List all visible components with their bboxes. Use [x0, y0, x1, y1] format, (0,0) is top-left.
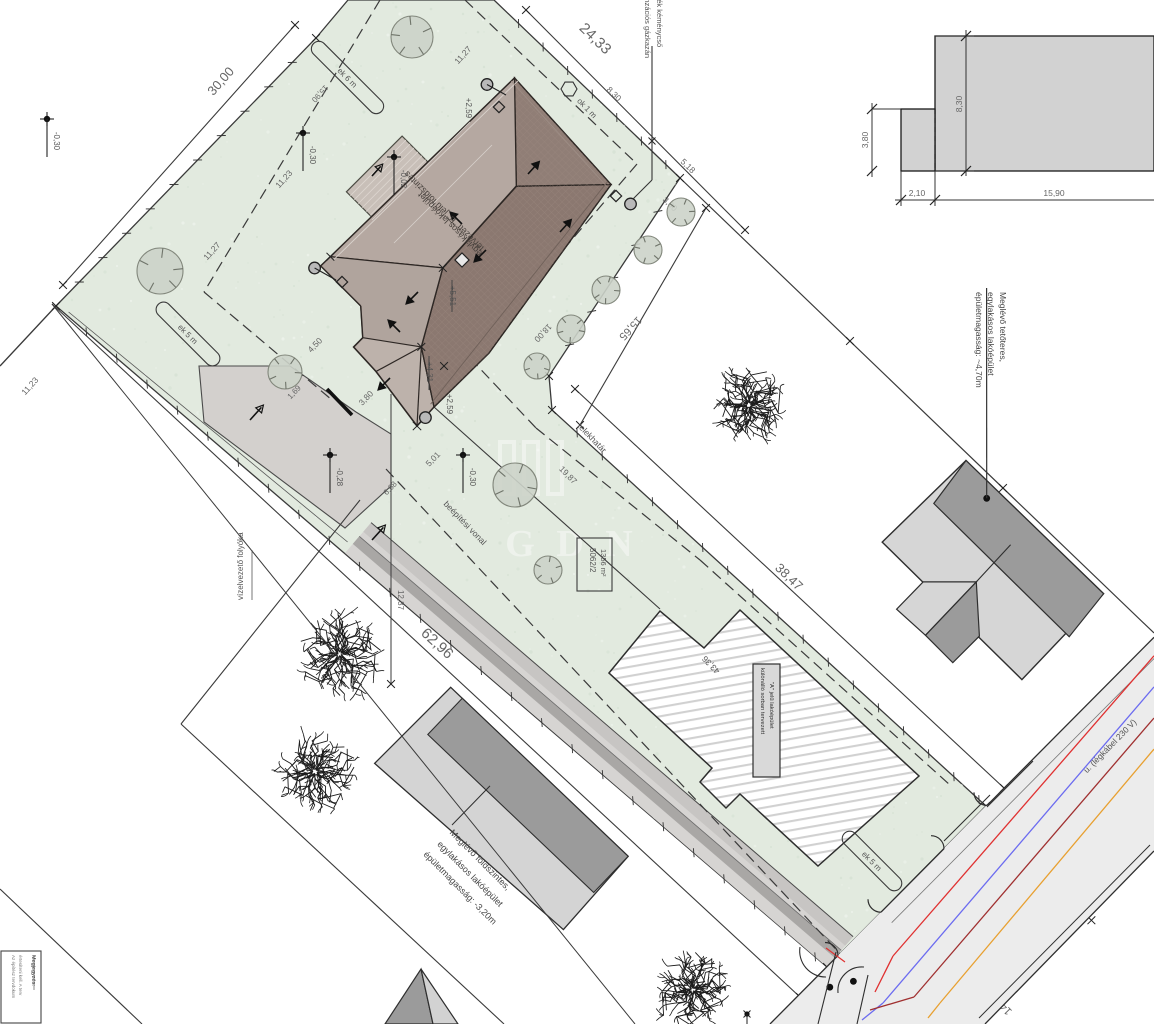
svg-text:egylakásos lakóépület: egylakásos lakóépület — [986, 292, 996, 376]
svg-text:épületmagasság: ~4,70m: épületmagasság: ~4,70m — [974, 292, 984, 388]
svg-text:12,37: 12,37 — [396, 590, 405, 611]
svg-text:-0,30: -0,30 — [308, 146, 317, 165]
svg-text:különálló sorban tervezett: különálló sorban tervezett — [759, 668, 765, 734]
svg-text:+2,59: +2,59 — [445, 394, 454, 415]
svg-text:15,90: 15,90 — [1043, 188, 1065, 198]
svg-text:Meglévő tetőteres,: Meglévő tetőteres, — [998, 292, 1008, 362]
svg-text:8,30: 8,30 — [954, 95, 964, 112]
svg-text:égéstermék kéménycső: égéstermék kéménycső — [655, 0, 664, 47]
svg-text:G D N: G D N — [505, 523, 638, 565]
svg-text:+2,59: +2,59 — [464, 98, 473, 119]
svg-text:Az építész tervdokum: Az építész tervdokum — [11, 955, 16, 999]
svg-text:-0,02: -0,02 — [399, 170, 408, 189]
svg-text:Megjegyzés:: Megjegyzés: — [30, 955, 36, 986]
svg-text:-0,30: -0,30 — [468, 468, 477, 487]
svg-text:5062/2: 5062/2 — [588, 548, 597, 573]
svg-text:1356 m²: 1356 m² — [599, 549, 608, 577]
svg-text:vízelvezető folyóka: vízelvezető folyóka — [236, 532, 245, 600]
svg-text:"A" jelű lakóépület: "A" jelű lakóépület — [768, 682, 774, 729]
svg-text:kondenzációs gázkazán: kondenzációs gázkazán — [643, 0, 652, 58]
svg-text:-0,28: -0,28 — [335, 468, 344, 487]
svg-text:3,80: 3,80 — [860, 131, 870, 148]
svg-text:2,10: 2,10 — [909, 188, 926, 198]
svg-text:-0,30: -0,30 — [52, 132, 61, 151]
svg-text:értesíteni kell. A terv: értesíteni kell. A terv — [18, 955, 23, 996]
